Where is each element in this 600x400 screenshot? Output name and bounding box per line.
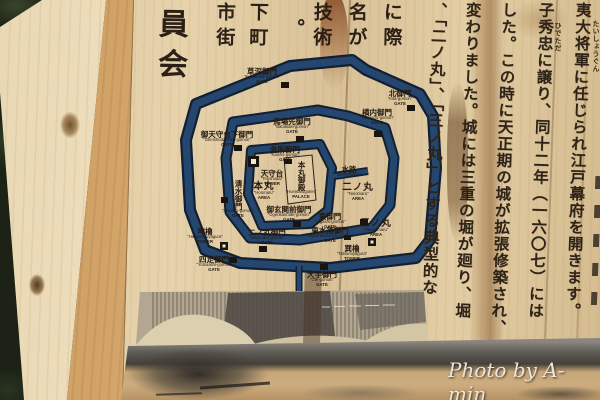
sign-text-fragment: 下町 [243,2,271,52]
weathering-stain [300,384,420,400]
map-label-waterway: 水路 WATERWAY [332,166,366,180]
map-label-shimizu-gomon: 清水御門 "Shimizu-gomon" GATE [215,180,261,220]
map-label-kita-gomon: 北御門 "Kita-gomon" GATE [383,90,418,108]
map-label-ote-gomon: 大手御門 "Ote-gomon" GATE [305,271,339,289]
map-label-babasaki-gomon: 馬場先御門 "Babasaki-gomon" GATE [267,118,316,136]
sign-text-fragment: 技術 [307,2,335,52]
furigana: たいしょうぐん [590,20,600,73]
map-label-hitsujisaru-yagura: 坤櫓 "Hitsujisaruyagura" TOWER [180,228,231,246]
stone-wall-sketch [136,262,428,345]
sign-text-fragment: 名が [342,2,370,52]
map-label-honmaru-goten: 本丸御殿 "Honmarugoten" PALACE [279,161,323,201]
map-label-yotsuashi-gomon: 四足御門 "Yotsuashi-gomon" GATE [189,256,239,274]
sign-text-fragment: 員会 [147,8,192,89]
map-label-ninomaru: 二ノ丸 "Ninomaru" AREA [342,183,374,204]
keep-tower-icon [248,156,259,167]
map-label-kusabuka-gomon: 草深御門 "Kusabuka-gomon" GATE [236,68,287,86]
map-label-sannomaru: 三ノ丸 "Sannomaru" AREA [358,219,393,240]
sign-text-fragment: に際 [377,2,405,52]
map-label-tatsumi-yagura: 巽櫓 "Tatsumiyagura" TOWER [330,245,373,263]
furigana: ひでただ [552,22,562,52]
map-label-ninomaru-gomon: 二ノ丸御門 "Ninomaru-gomon" GATE [242,229,293,247]
map-label-yokouchi-gomon: 横内御門 "Yokouchi-gomon" GATE [353,109,402,127]
map-label-otenshudaishita-gomon: 御天守台下御門 "Otenshudaishita-gomon" GATE [193,131,261,149]
map-label-higashimizuochi-gomon: 東水落御門 "Higashimizuochi-gomon" GATE [296,227,364,245]
photo-watermark: Photo by A-min [448,358,600,400]
sign-text-fragment: 市街 [210,2,238,52]
photo-of-wooden-castle-sign: 草深御門 "Kusabuka-gomon" GATE 北御門 "Kita-gom… [0,0,600,400]
sign-text-fragment: 。 [280,18,307,43]
